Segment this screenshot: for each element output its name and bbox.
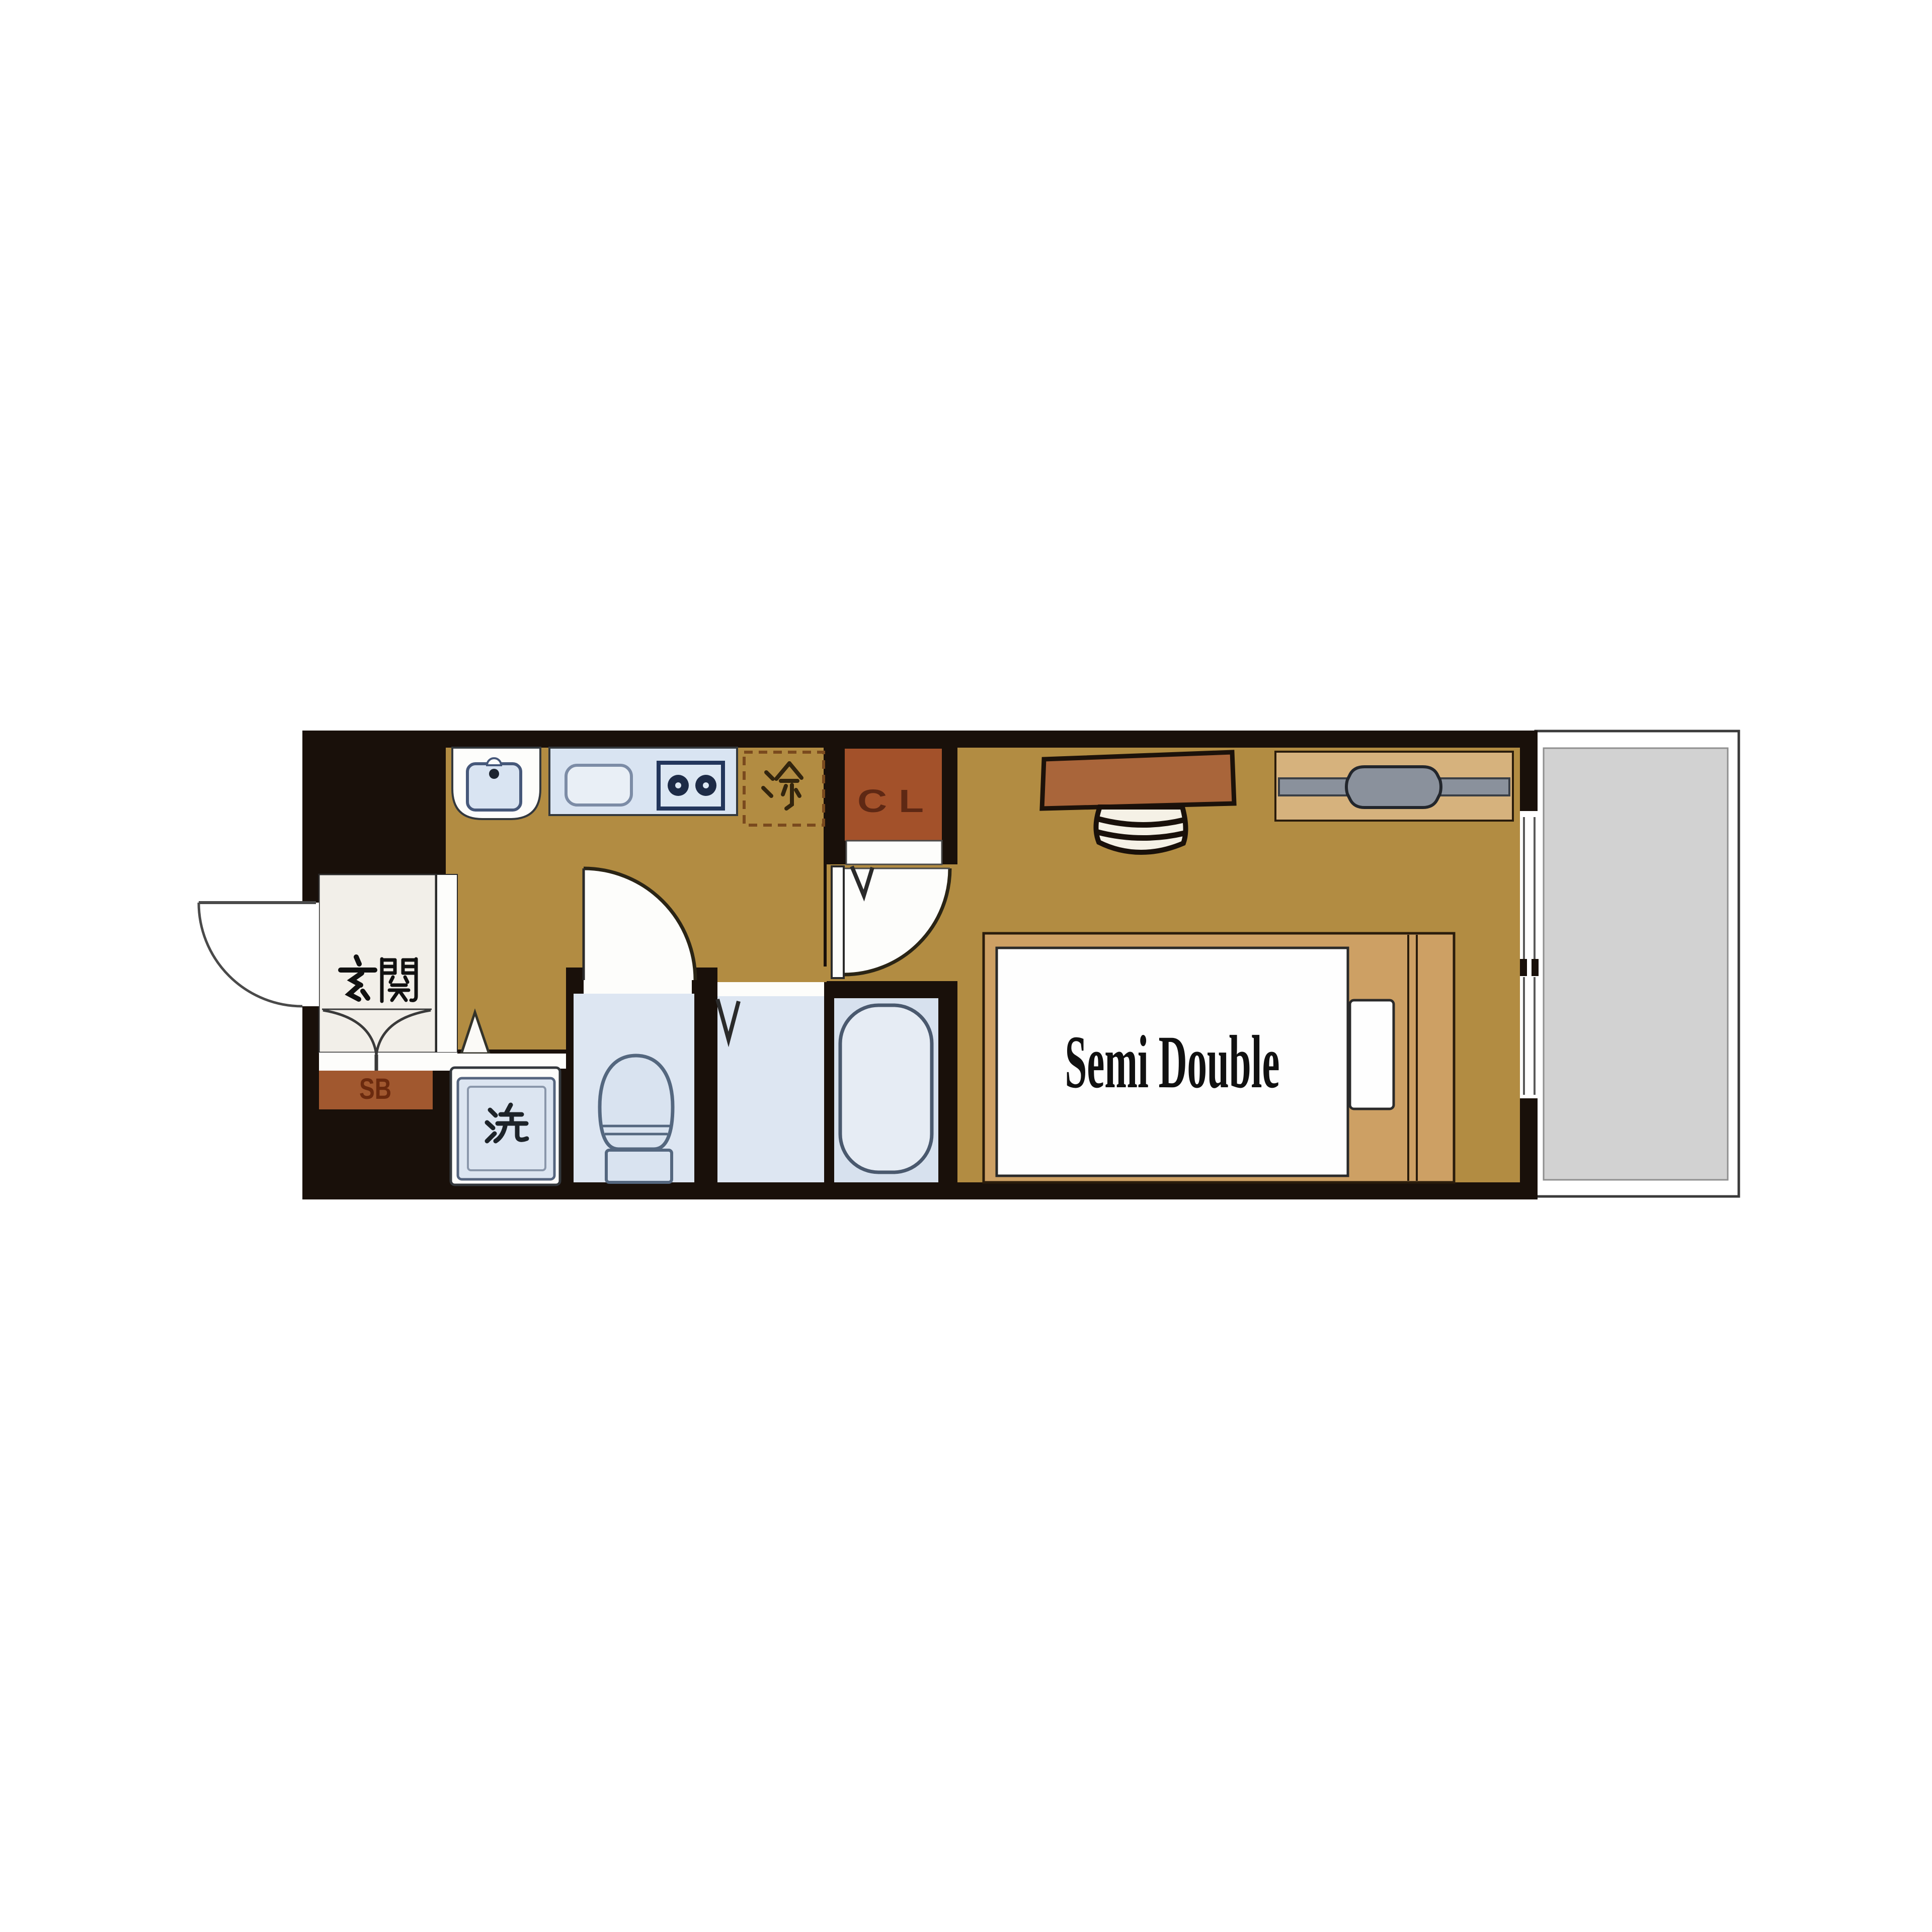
svg-text:C L: C L — [857, 783, 924, 819]
svg-text:SB: SB — [359, 1073, 391, 1105]
svg-text:Semi Double: Semi Double — [1065, 1020, 1280, 1104]
